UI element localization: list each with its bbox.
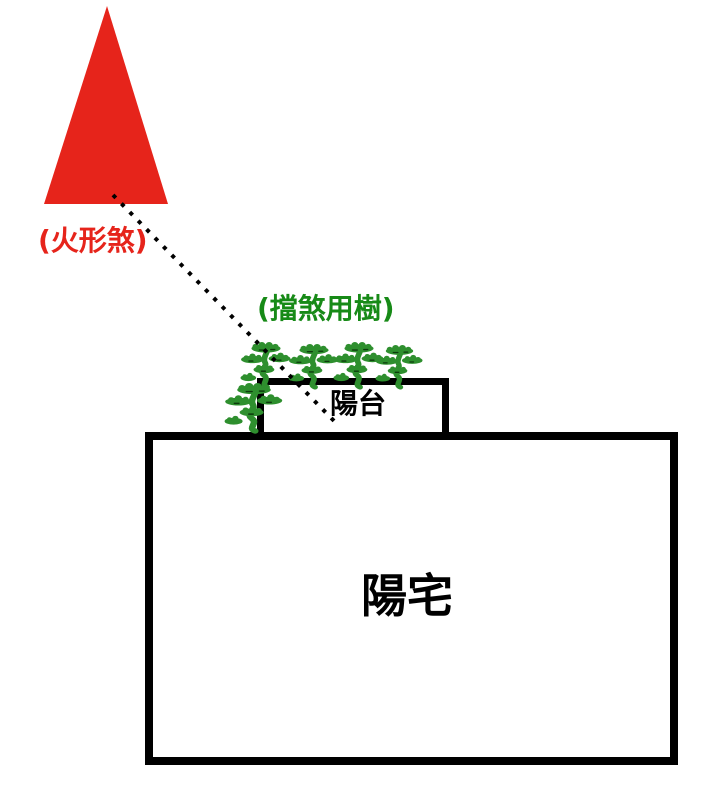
fengshui-diagram: (火形煞) (擋煞用樹) 陽台 陽宅 xyxy=(0,0,722,787)
blocking-trees-label: (擋煞用樹) xyxy=(257,294,395,325)
fire-triangle xyxy=(44,6,168,204)
fire-sha-label: (火形煞) xyxy=(38,226,148,257)
balcony-label: 陽台 xyxy=(330,389,386,420)
house-label: 陽宅 xyxy=(361,571,453,622)
